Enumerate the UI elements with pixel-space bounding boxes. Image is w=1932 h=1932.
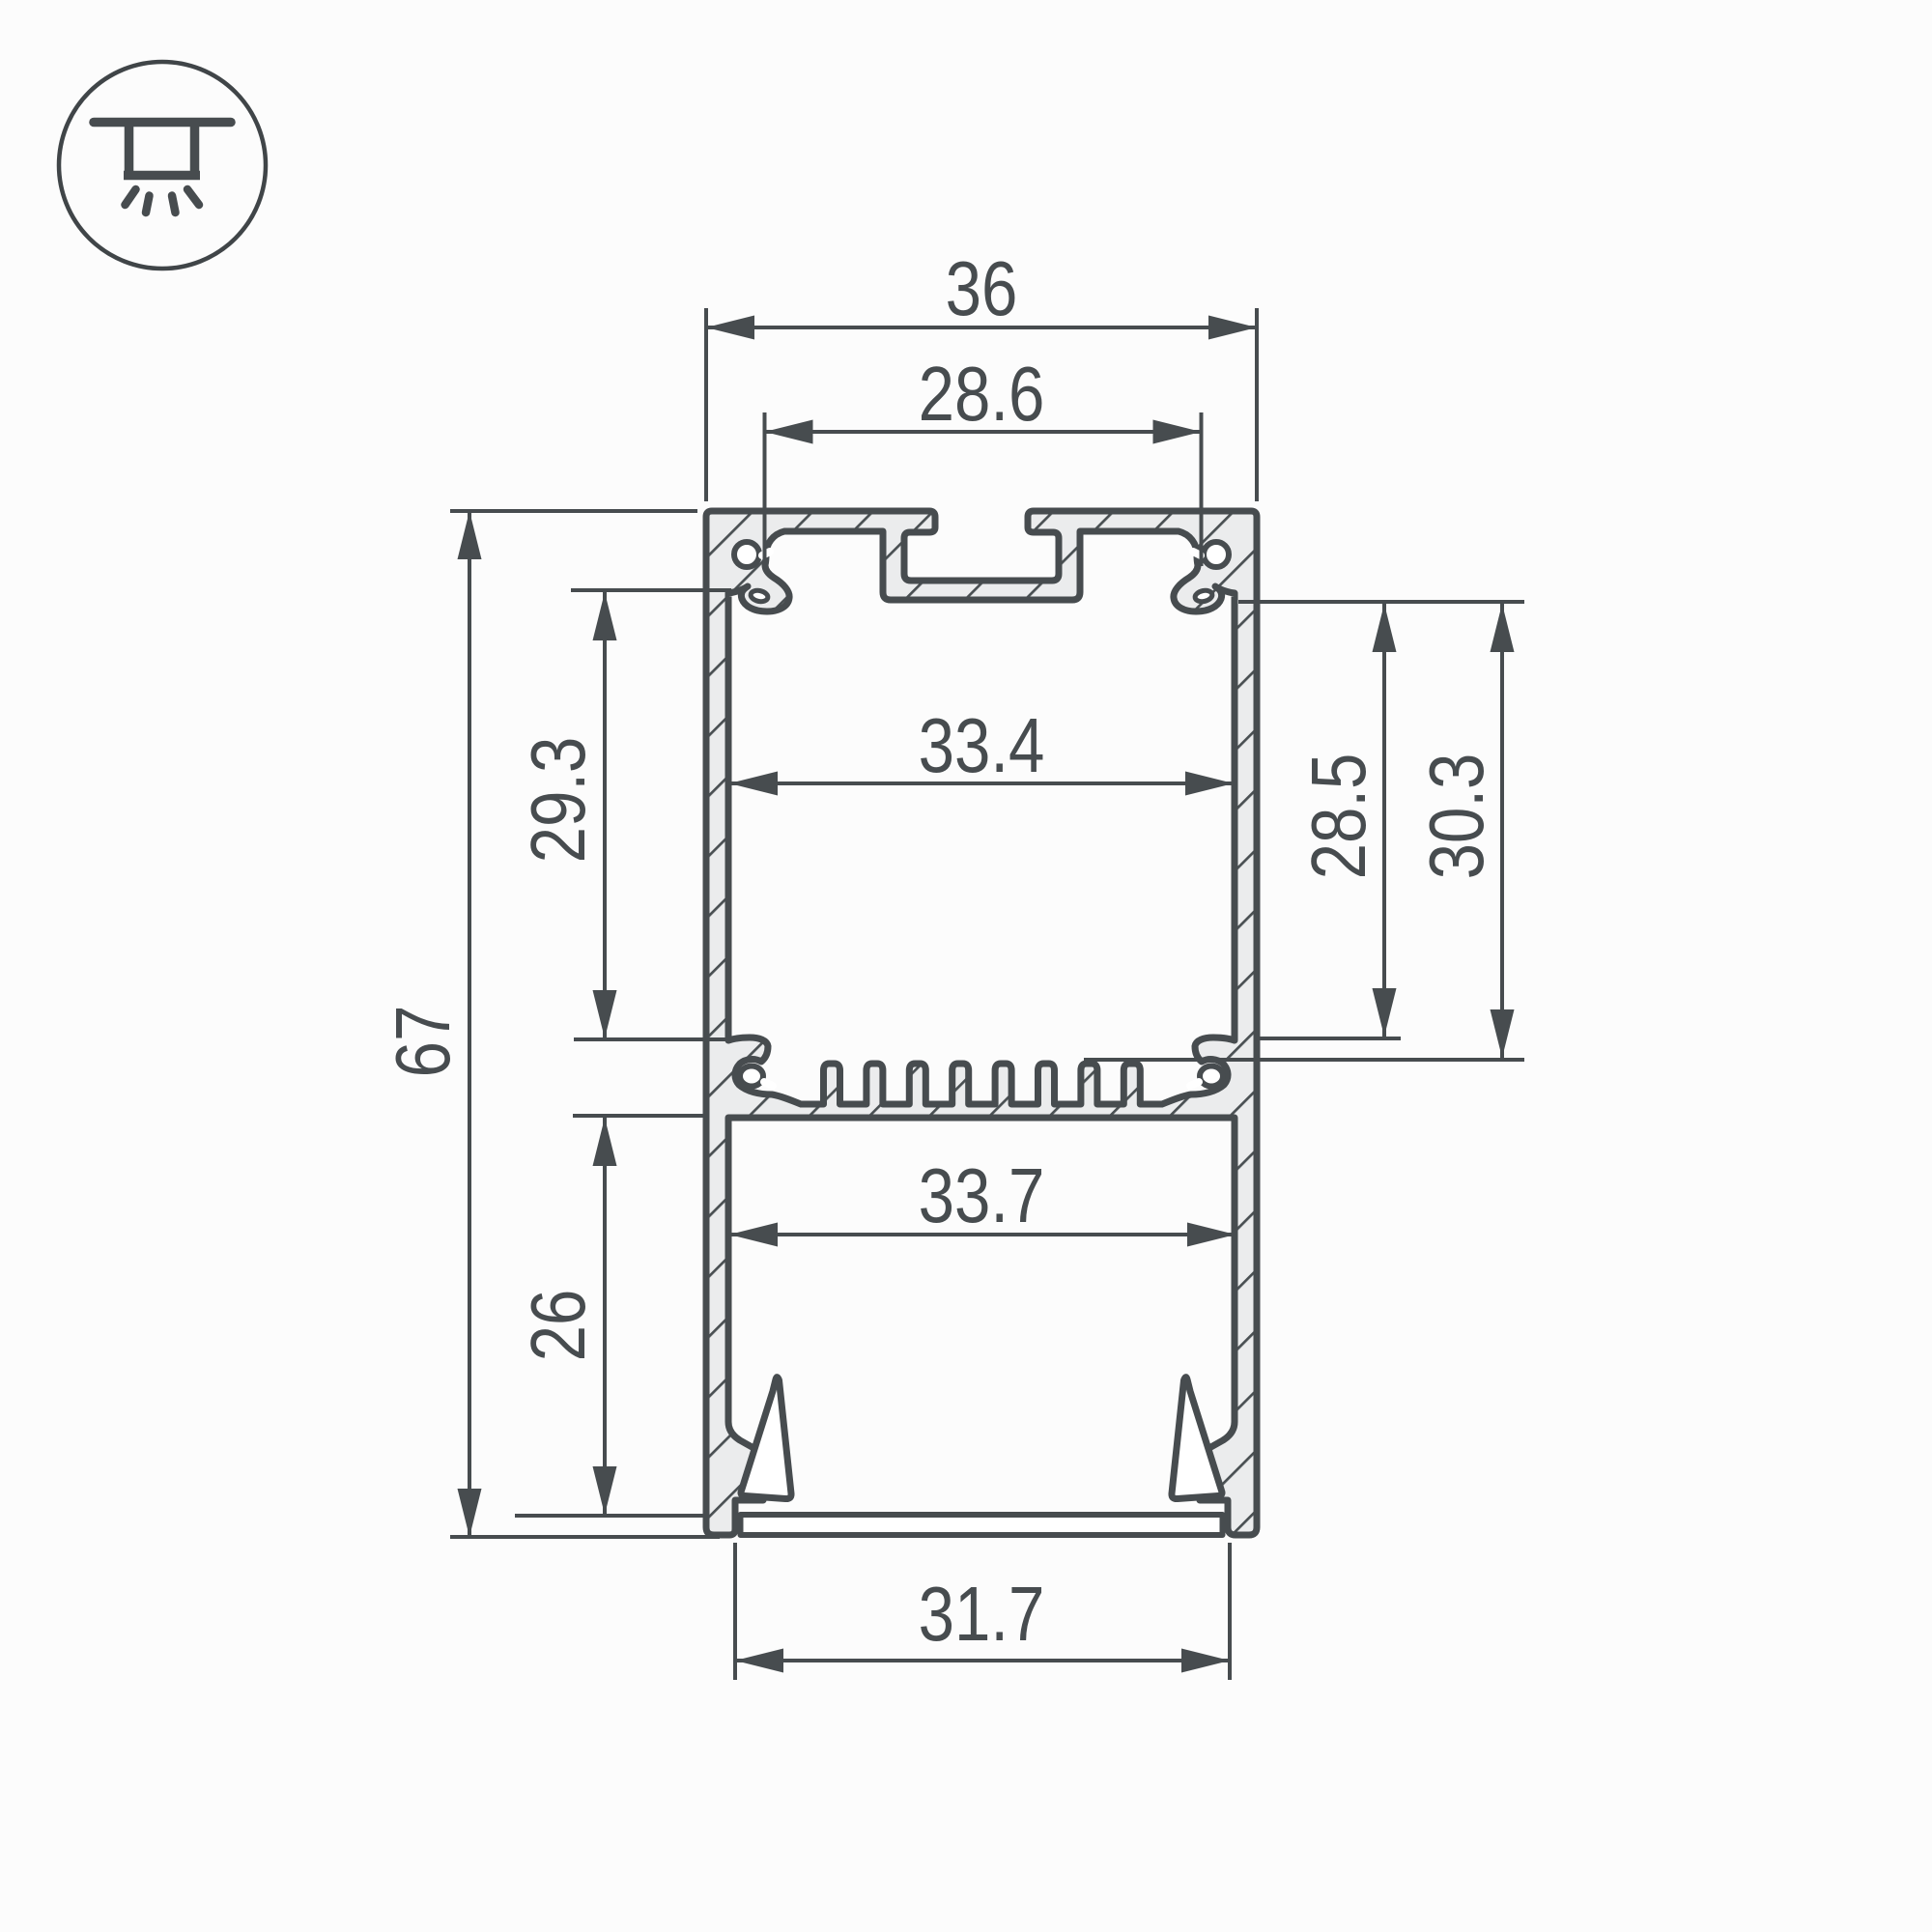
svg-text:31.7: 31.7 — [919, 1570, 1045, 1657]
svg-text:30.3: 30.3 — [1412, 753, 1499, 880]
svg-text:33.7: 33.7 — [919, 1151, 1045, 1238]
svg-text:67: 67 — [379, 1006, 466, 1078]
svg-text:28.6: 28.6 — [919, 350, 1045, 437]
svg-text:29.3: 29.3 — [514, 737, 601, 864]
svg-text:26: 26 — [514, 1290, 601, 1362]
svg-text:36: 36 — [946, 244, 1018, 331]
svg-text:28.5: 28.5 — [1294, 753, 1381, 880]
svg-text:33.4: 33.4 — [919, 701, 1045, 788]
